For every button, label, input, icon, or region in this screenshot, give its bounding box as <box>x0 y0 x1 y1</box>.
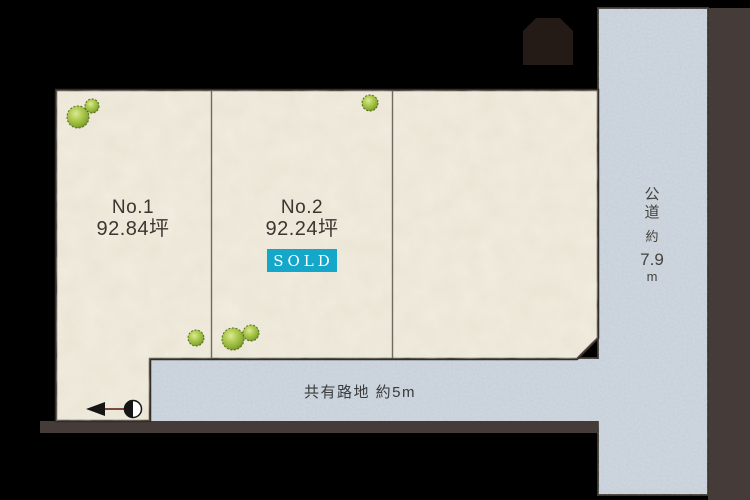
public-road-label: 公 道 約 7.9 m <box>631 187 673 283</box>
tree-icon <box>362 95 378 111</box>
plot-area: 92.84坪 <box>54 219 212 241</box>
tree-icon <box>85 99 99 113</box>
road-approx: 約 <box>645 230 658 243</box>
road-name-char: 道 <box>644 205 659 220</box>
shared-alley-label: 共有路地 約5m <box>250 381 470 402</box>
sold-badge: SOLD <box>267 249 337 272</box>
neighbor-building-icon <box>523 18 573 65</box>
plot-number: No.2 <box>212 198 392 219</box>
tree-icon <box>222 328 244 350</box>
tree-icon <box>188 330 204 346</box>
plot-no2-label: No.2 92.24坪 <box>212 198 392 240</box>
tree-icon <box>243 325 259 341</box>
right-boundary-strip <box>708 8 750 500</box>
plot-no1-label: No.1 92.84坪 <box>54 198 212 240</box>
plot-no3-region <box>392 90 598 359</box>
plot-number: No.1 <box>54 198 212 219</box>
plot-map-canvas: No.1 92.84坪 No.2 92.24坪 SOLD 公 道 約 7.9 m… <box>0 0 750 500</box>
road-name-char: 公 <box>644 187 659 202</box>
plot-area: 92.24坪 <box>212 219 392 241</box>
road-width-value: 7.9 <box>640 251 664 268</box>
bottom-boundary-strip <box>40 421 598 433</box>
road-width-unit: m <box>647 270 658 283</box>
